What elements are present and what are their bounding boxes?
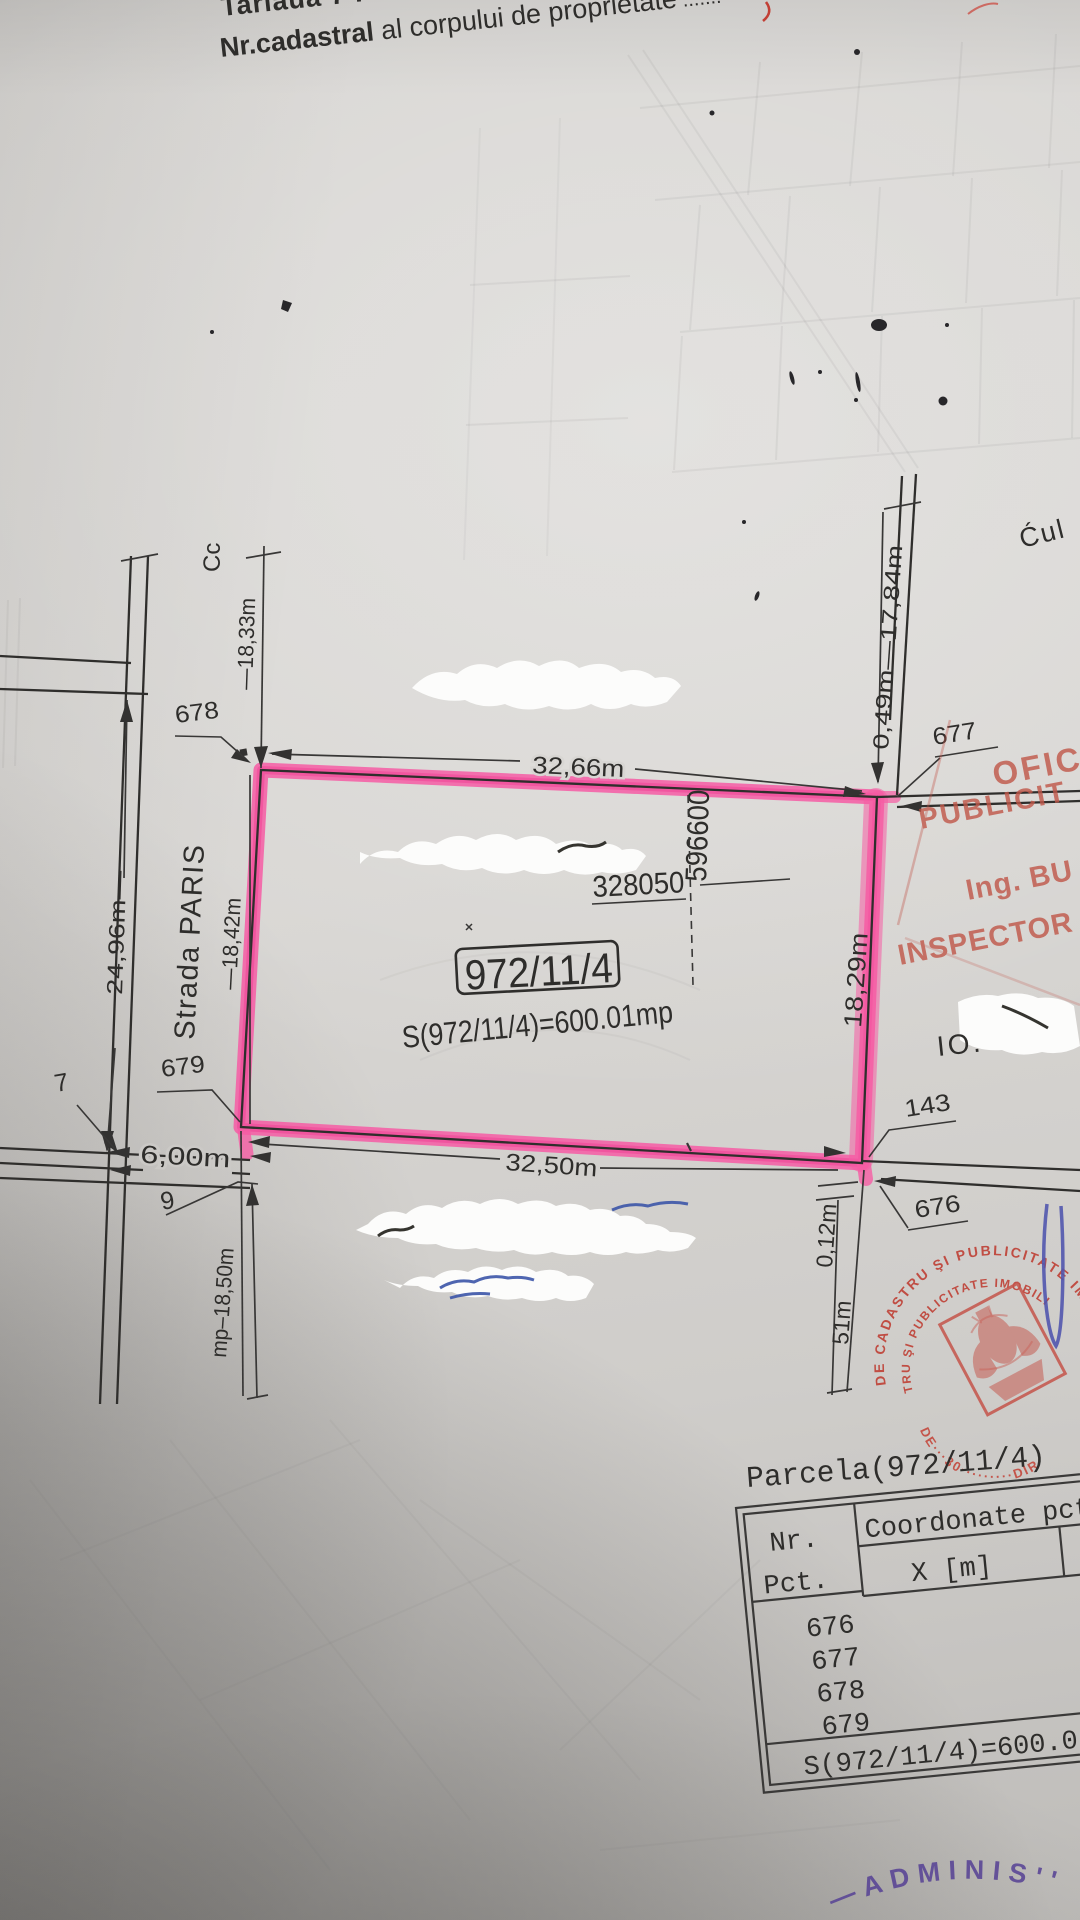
svg-text:Strada PARIS: Strada PARIS — [169, 843, 211, 1041]
svg-text:679: 679 — [159, 1051, 206, 1083]
svg-text:—ADMINISʹʹ: —ADMINISʹʹ — [824, 1855, 1067, 1916]
svg-text:32,50m: 32,50m — [505, 1149, 599, 1182]
svg-text:Ing. BU: Ing. BU — [963, 855, 1076, 907]
svg-text:0,12m: 0,12m — [811, 1203, 841, 1269]
svg-text:676: 676 — [913, 1190, 963, 1224]
svg-text:Coordonate pct.: Coordonate pct. — [863, 1493, 1080, 1547]
svg-text:972/11/4: 972/11/4 — [464, 944, 614, 999]
svg-text:Ćul: Ćul — [1016, 512, 1069, 553]
svg-text:Cc: Cc — [199, 543, 226, 572]
svg-text:24,96m—: 24,96m— — [102, 870, 131, 995]
svg-text:679: 679 — [820, 1709, 871, 1744]
svg-text:676: 676 — [805, 1611, 856, 1646]
svg-text:7: 7 — [52, 1068, 71, 1098]
svg-text:Pct.: Pct. — [762, 1566, 829, 1602]
svg-text:—18,33m: —18,33m — [232, 597, 260, 690]
svg-text:Nr.: Nr. — [768, 1525, 819, 1560]
svg-text:677: 677 — [810, 1644, 861, 1679]
svg-text:—18,42m: —18,42m — [216, 897, 246, 990]
svg-text:mp–18,50m: mp–18,50m — [206, 1247, 239, 1358]
svg-text:678: 678 — [815, 1676, 866, 1711]
svg-text:9: 9 — [158, 1186, 177, 1216]
svg-text:596600: 596600 — [680, 789, 716, 882]
svg-text:677: 677 — [931, 717, 979, 751]
svg-text:51m: 51m — [827, 1300, 856, 1346]
svg-text:6,00m: 6,00m — [140, 1141, 231, 1174]
svg-text:PUBLICIT: PUBLICIT — [916, 776, 1069, 836]
svg-text:INSPECTOR: INSPECTOR — [895, 907, 1076, 972]
svg-text:S(972/11/4)=600.01mp: S(972/11/4)=600.01mp — [400, 994, 674, 1055]
svg-text:143: 143 — [903, 1089, 953, 1123]
svg-text:IO.: IO. — [935, 1026, 984, 1062]
svg-text:678: 678 — [173, 697, 220, 729]
svg-text:32,66m: 32,66m — [532, 752, 625, 783]
